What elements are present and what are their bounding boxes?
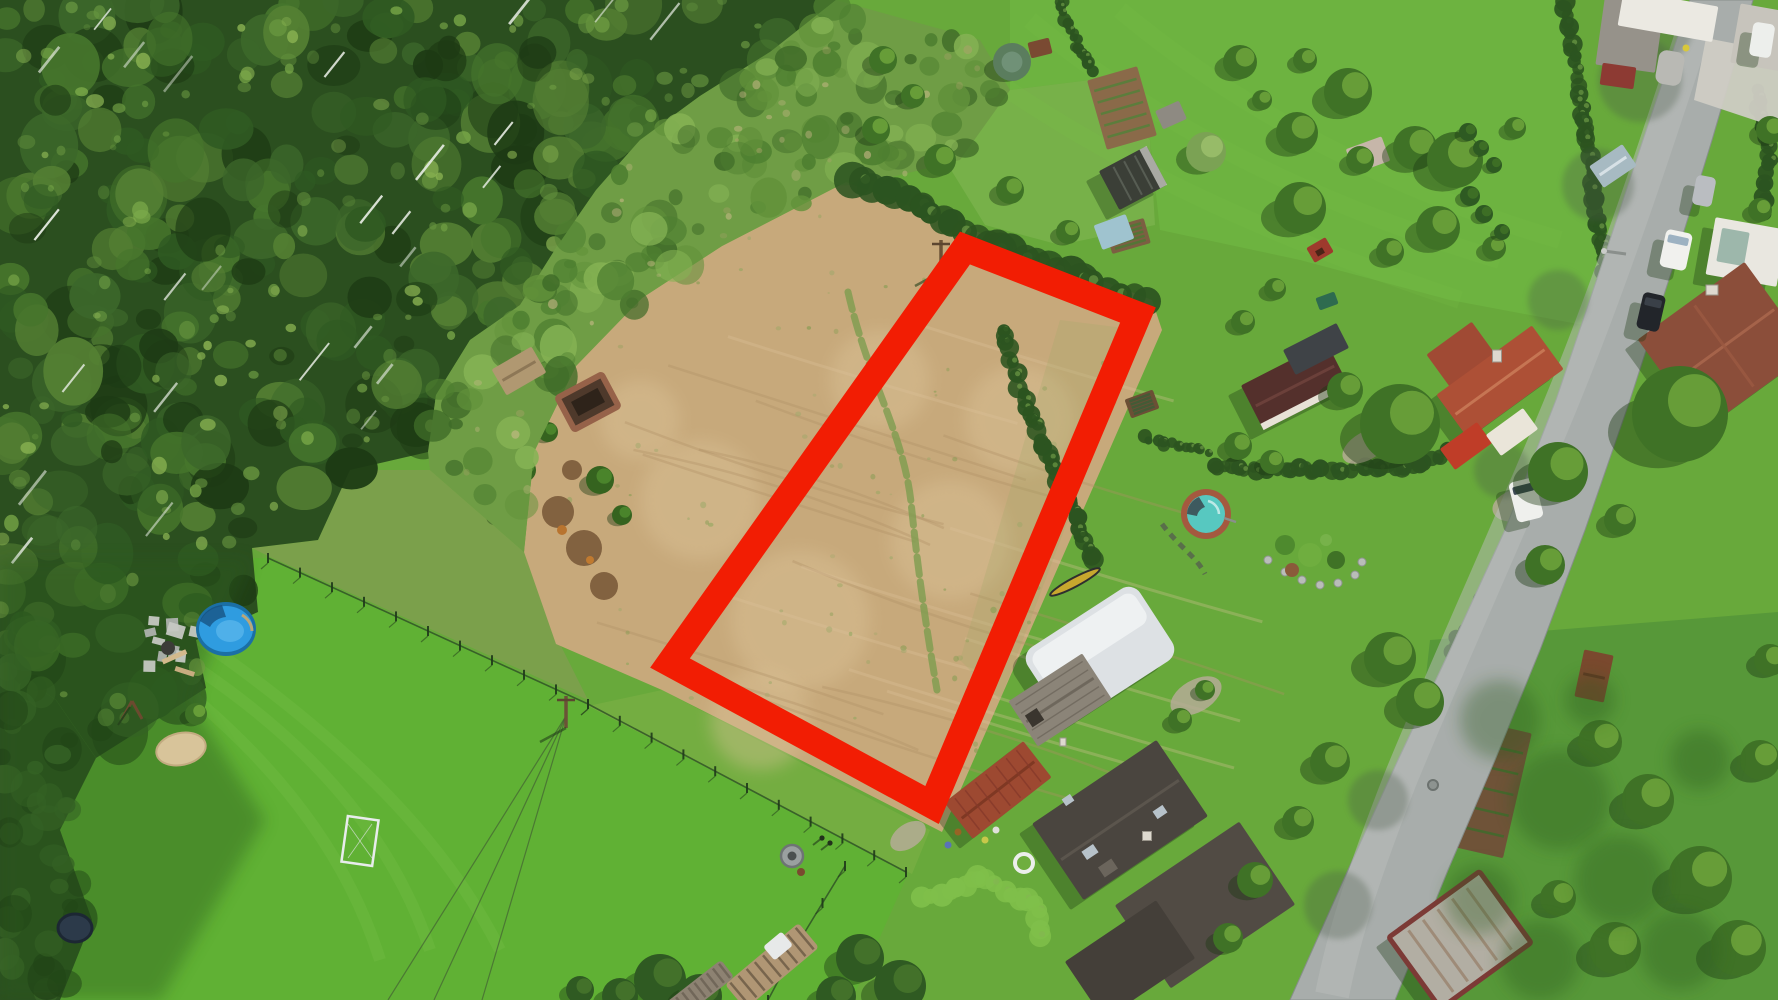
chimney [1493,350,1502,362]
balcony-glass [1716,228,1749,266]
manhole [1428,780,1438,790]
aerial-photo: Aerial drone photograph of a rural build… [0,0,1778,1000]
aerial-photo-canvas [0,0,1778,1000]
chimney [1706,285,1718,295]
white-ring-planter [1015,854,1033,872]
red-awning [1600,63,1637,90]
chimney [1060,738,1066,746]
chimney [1143,832,1152,841]
garden-pool-left [196,602,256,656]
fire-pit [161,641,175,655]
yellow-bin [1683,45,1690,52]
trampoline [58,914,92,942]
